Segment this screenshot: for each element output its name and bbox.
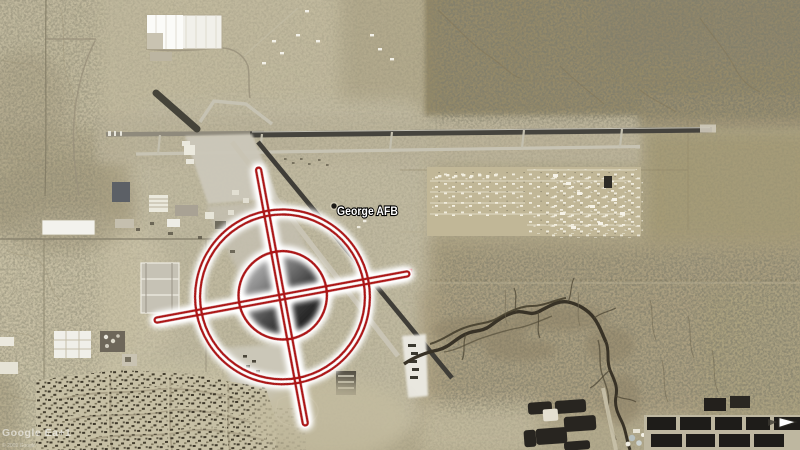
svg-text:© 2009 Google: © 2009 Google xyxy=(2,442,36,449)
svg-text:Google Ea+1: Google Ea+1 xyxy=(2,427,71,439)
svg-text:George AFB: George AFB xyxy=(337,204,398,218)
